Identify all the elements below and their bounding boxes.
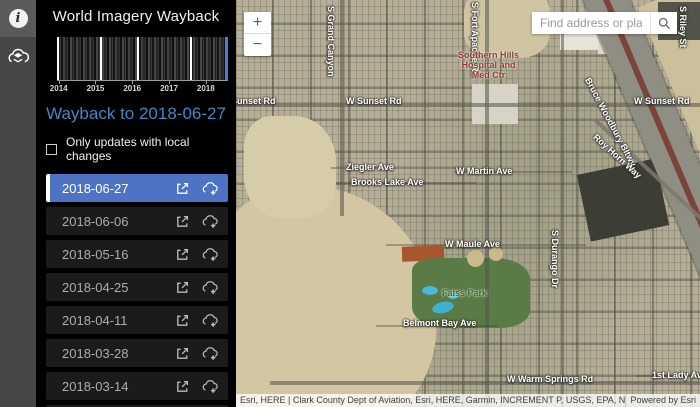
release-date: 2018-03-14: [62, 379, 175, 394]
search-button[interactable]: [650, 12, 677, 34]
release-row[interactable]: 2018-06-27: [46, 174, 228, 202]
search-input[interactable]: [532, 12, 650, 34]
map-label: Belmont Bay Ave: [403, 318, 476, 328]
year-label: 2015: [87, 84, 105, 93]
map-label: W Sunset Rd: [634, 96, 690, 106]
map-label: W Martin Ave: [456, 166, 512, 176]
timeline-release-marker[interactable]: [57, 37, 59, 80]
map-label: Ziegler Ave: [346, 162, 394, 172]
release-row[interactable]: 2018-03-28: [46, 339, 228, 367]
release-actions: [175, 379, 218, 394]
left-toolbar: i: [0, 0, 36, 407]
map-label: S Riley St: [678, 6, 688, 48]
timeline-release-marker[interactable]: [100, 37, 102, 80]
park-pool: [422, 286, 438, 295]
year-label: 2017: [160, 84, 178, 93]
road-sunset: [236, 103, 700, 107]
cloud-layers-button[interactable]: [0, 38, 36, 76]
ballfield: [467, 250, 484, 267]
cloud-add-icon[interactable]: [201, 379, 218, 394]
map-view[interactable]: WindS Grand CanyonS Fort Apache RdS Rile…: [236, 0, 700, 407]
map-label: W Warm Springs Rd: [507, 374, 593, 384]
powered-by-esri: Powered by Esri: [625, 394, 700, 407]
sidebar: World Imagery Wayback 201420152016201720…: [36, 0, 236, 407]
map-label: S Durango Dr: [550, 230, 560, 288]
timeline-release-marker[interactable]: [137, 37, 139, 80]
zoom-in-button[interactable]: +: [244, 12, 271, 34]
cloud-layers-icon: [6, 47, 30, 68]
local-changes-label: Only updates with local changes: [66, 135, 236, 163]
timeline-barcode[interactable]: [57, 37, 228, 81]
release-actions: [175, 247, 218, 262]
map-label: S Grand Canyon: [326, 6, 336, 77]
open-item-icon[interactable]: [175, 214, 190, 229]
release-date: 2018-06-27: [62, 181, 175, 196]
zoom-control: + −: [244, 12, 271, 56]
year-label: 2014: [50, 84, 68, 93]
open-item-icon[interactable]: [175, 280, 190, 295]
open-item-icon[interactable]: [175, 346, 190, 361]
release-actions: [175, 280, 218, 295]
release-row[interactable]: 2018-06-06: [46, 207, 228, 235]
release-actions: [175, 313, 218, 328]
road-durango: [561, 0, 564, 407]
ballfield: [489, 247, 503, 261]
cloud-add-icon[interactable]: [201, 214, 218, 229]
map-label: Southern Hills Hospital and Med Ctr: [458, 50, 519, 80]
local-changes-filter: Only updates with local changes: [46, 135, 236, 163]
release-row[interactable]: 2018-04-11: [46, 306, 228, 334]
cloud-add-icon[interactable]: [201, 280, 218, 295]
release-row[interactable]: 2018-03-14: [46, 372, 228, 400]
release-date: 2018-06-06: [62, 214, 175, 229]
map-label: W Sunset Rd: [346, 96, 402, 106]
attribution-bar: Esri, HERE | Clark County Dept of Aviati…: [236, 394, 700, 407]
map-label: Faiss Park: [442, 288, 487, 298]
timeline-selected-marker[interactable]: [225, 37, 228, 80]
desert-area: [244, 116, 336, 218]
zoom-out-button[interactable]: −: [244, 34, 271, 56]
release-row[interactable]: 2018-05-16: [46, 240, 228, 268]
info-button[interactable]: i: [0, 0, 36, 38]
attribution-text: Esri, HERE | Clark County Dept of Aviati…: [236, 394, 625, 407]
search-box: [532, 12, 677, 34]
map-label: Brooks Lake Ave: [351, 177, 423, 187]
cloud-add-icon[interactable]: [201, 346, 218, 361]
release-actions: [175, 214, 218, 229]
app-title: World Imagery Wayback: [36, 8, 236, 25]
release-date: 2018-04-11: [62, 313, 175, 328]
release-timeline[interactable]: 20142015201620172018: [57, 37, 228, 95]
open-item-icon[interactable]: [175, 247, 190, 262]
release-actions: [175, 346, 218, 361]
open-item-icon[interactable]: [175, 313, 190, 328]
release-date: 2018-05-16: [62, 247, 175, 262]
cloud-add-icon[interactable]: [201, 181, 218, 196]
year-label: 2018: [197, 84, 215, 93]
map-label: W Maule Ave: [445, 239, 500, 249]
year-label: 2016: [123, 84, 141, 93]
wayback-app: i World Imagery Wayback 2014201520162017…: [0, 0, 700, 407]
cloud-add-icon[interactable]: [201, 313, 218, 328]
wayback-heading: Wayback to 2018-06-27: [36, 104, 236, 124]
map-label: W Sunset Rd: [236, 96, 276, 106]
map-label: 1st Lady Av: [652, 370, 700, 380]
timeline-axis: 20142015201620172018: [57, 81, 228, 95]
local-changes-checkbox[interactable]: [46, 144, 57, 155]
search-icon: [658, 17, 671, 30]
release-actions: [175, 181, 218, 196]
open-item-icon[interactable]: [175, 181, 190, 196]
release-date: 2018-03-28: [62, 346, 175, 361]
release-row[interactable]: 2018-04-25: [46, 273, 228, 301]
release-list: 2018-06-272018-06-062018-05-162018-04-25…: [36, 174, 236, 407]
release-date: 2018-04-25: [62, 280, 175, 295]
info-icon: i: [9, 9, 28, 28]
open-item-icon[interactable]: [175, 379, 190, 394]
cloud-add-icon[interactable]: [201, 247, 218, 262]
timeline-release-marker[interactable]: [190, 37, 192, 80]
